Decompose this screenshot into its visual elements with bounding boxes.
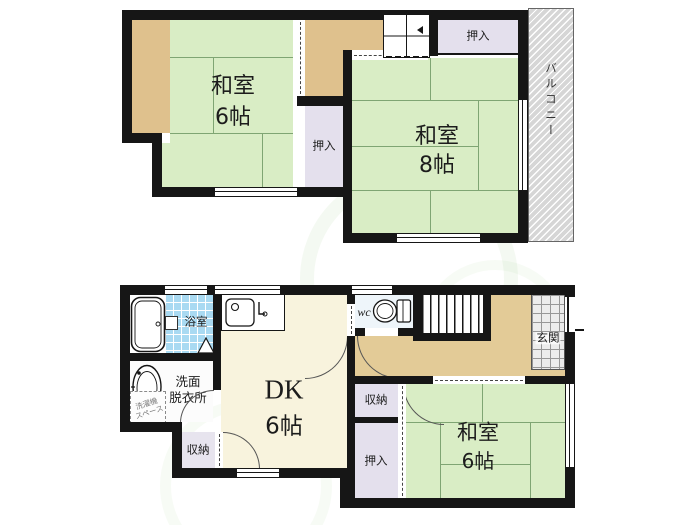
wc-label: wc [357, 306, 370, 318]
wall [152, 187, 215, 197]
wall [483, 285, 491, 341]
room-label: 和室 [457, 423, 499, 444]
wall [343, 50, 352, 243]
window [565, 383, 575, 467]
wall [279, 468, 348, 478]
tatami-line [352, 190, 518, 191]
wall [565, 467, 575, 508]
tatami-line [430, 190, 431, 233]
hallway [491, 294, 531, 376]
tatami-line [352, 100, 518, 101]
washroom-label: 洗面 [175, 376, 200, 389]
stair-direction-arrow [417, 26, 423, 34]
wall [172, 468, 237, 478]
floor-plan: バルコニー 和室 6帖 和室 8帖 押入 押入 [0, 0, 700, 525]
window [397, 233, 480, 243]
storage-label: 収納 [365, 394, 388, 406]
tatami-line [170, 57, 293, 58]
wall [413, 285, 421, 336]
storage-label: 収納 [187, 444, 210, 456]
upper-hallway [305, 55, 343, 96]
window [215, 187, 297, 197]
tatami-line [170, 133, 293, 134]
bathtub-icon [130, 296, 166, 353]
sliding-door [398, 384, 406, 498]
wall [347, 336, 355, 508]
sliding-door [433, 376, 525, 384]
window [237, 468, 279, 478]
tatami-line [478, 100, 479, 190]
room-label: 6帖 [462, 451, 495, 471]
window [518, 100, 528, 190]
closet-label: 押入 [467, 30, 490, 42]
window [165, 285, 207, 295]
balcony-label: バルコニー [543, 62, 559, 140]
stairwell-grid [383, 14, 430, 58]
room-washitsu-6-upper [170, 20, 293, 187]
tatami-line [530, 422, 531, 500]
wall [213, 294, 221, 390]
tatami-line [430, 58, 431, 100]
wall [413, 333, 491, 341]
tatami-line [482, 384, 483, 422]
wall [297, 187, 343, 197]
wall [347, 294, 355, 304]
wall [525, 376, 575, 384]
wall [129, 353, 221, 361]
room-label: 和室 [415, 126, 459, 148]
sliding-door [347, 304, 355, 336]
window [215, 285, 280, 295]
tatami-line [440, 422, 441, 500]
wall [343, 233, 397, 243]
upper-wood-area [132, 20, 170, 133]
wall [347, 376, 433, 384]
entrance-door-handle [575, 329, 584, 331]
stairwell-open-boundary [386, 56, 428, 58]
wall [565, 285, 575, 297]
bath-door-mark [165, 316, 178, 330]
room-label: 8帖 [419, 155, 455, 177]
tatami-line [262, 133, 263, 187]
closet-label: 押入 [365, 455, 388, 467]
wc-door-gap [365, 328, 398, 336]
wall [122, 10, 132, 143]
room-label: 6帖 [265, 416, 303, 439]
closet-label: 押入 [313, 140, 336, 152]
wall [355, 417, 398, 423]
wall [518, 190, 528, 243]
room-label: 和室 [211, 76, 255, 98]
wall [122, 10, 528, 20]
kitchen-sink-icon [223, 296, 283, 329]
room-label: DK [265, 377, 304, 404]
wall [297, 96, 343, 106]
room-washitsu-6-upper [162, 143, 170, 187]
window [352, 285, 392, 295]
wall [355, 328, 365, 336]
toilet-icon [372, 297, 413, 325]
wall [518, 10, 528, 100]
bath-label: 浴室 [185, 316, 208, 328]
closet-front-line [438, 53, 518, 55]
sliding-door [215, 432, 223, 468]
room-label: 6帖 [215, 107, 251, 129]
entrance-door-line [567, 297, 569, 332]
genkan-label: 玄関 [536, 332, 561, 344]
sliding-door [295, 20, 305, 96]
staircase [421, 294, 485, 335]
wall [340, 498, 575, 508]
